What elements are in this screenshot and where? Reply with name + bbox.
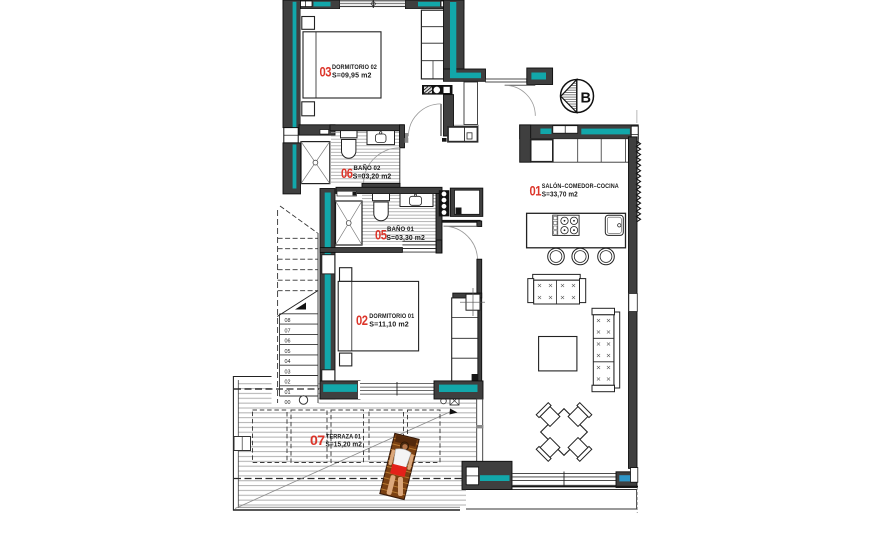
svg-text:S=33,70 m2: S=33,70 m2 — [542, 189, 578, 198]
svg-text:05: 05 — [375, 227, 387, 243]
svg-text:01: 01 — [285, 390, 291, 396]
svg-text:S=09,95 m2: S=09,95 m2 — [332, 71, 372, 80]
svg-text:01: 01 — [530, 183, 542, 199]
svg-text:06: 06 — [341, 165, 353, 181]
svg-text:06: 06 — [285, 339, 291, 345]
svg-text:08: 08 — [285, 318, 291, 324]
svg-text:S=03,30 m2: S=03,30 m2 — [386, 233, 425, 242]
svg-text:07: 07 — [310, 432, 325, 448]
svg-text:B: B — [581, 91, 591, 107]
svg-text:S=15,20 m2: S=15,20 m2 — [326, 440, 363, 449]
svg-text:02: 02 — [285, 380, 291, 386]
svg-text:00: 00 — [285, 400, 291, 406]
svg-text:05: 05 — [285, 349, 291, 355]
svg-text:S=11,10 m2: S=11,10 m2 — [369, 320, 409, 329]
svg-text:S=03,20 m2: S=03,20 m2 — [353, 171, 392, 180]
svg-text:07: 07 — [285, 328, 291, 334]
svg-text:03: 03 — [285, 369, 291, 375]
svg-text:02: 02 — [356, 312, 368, 328]
svg-text:04: 04 — [285, 359, 291, 365]
svg-text:03: 03 — [320, 64, 332, 80]
